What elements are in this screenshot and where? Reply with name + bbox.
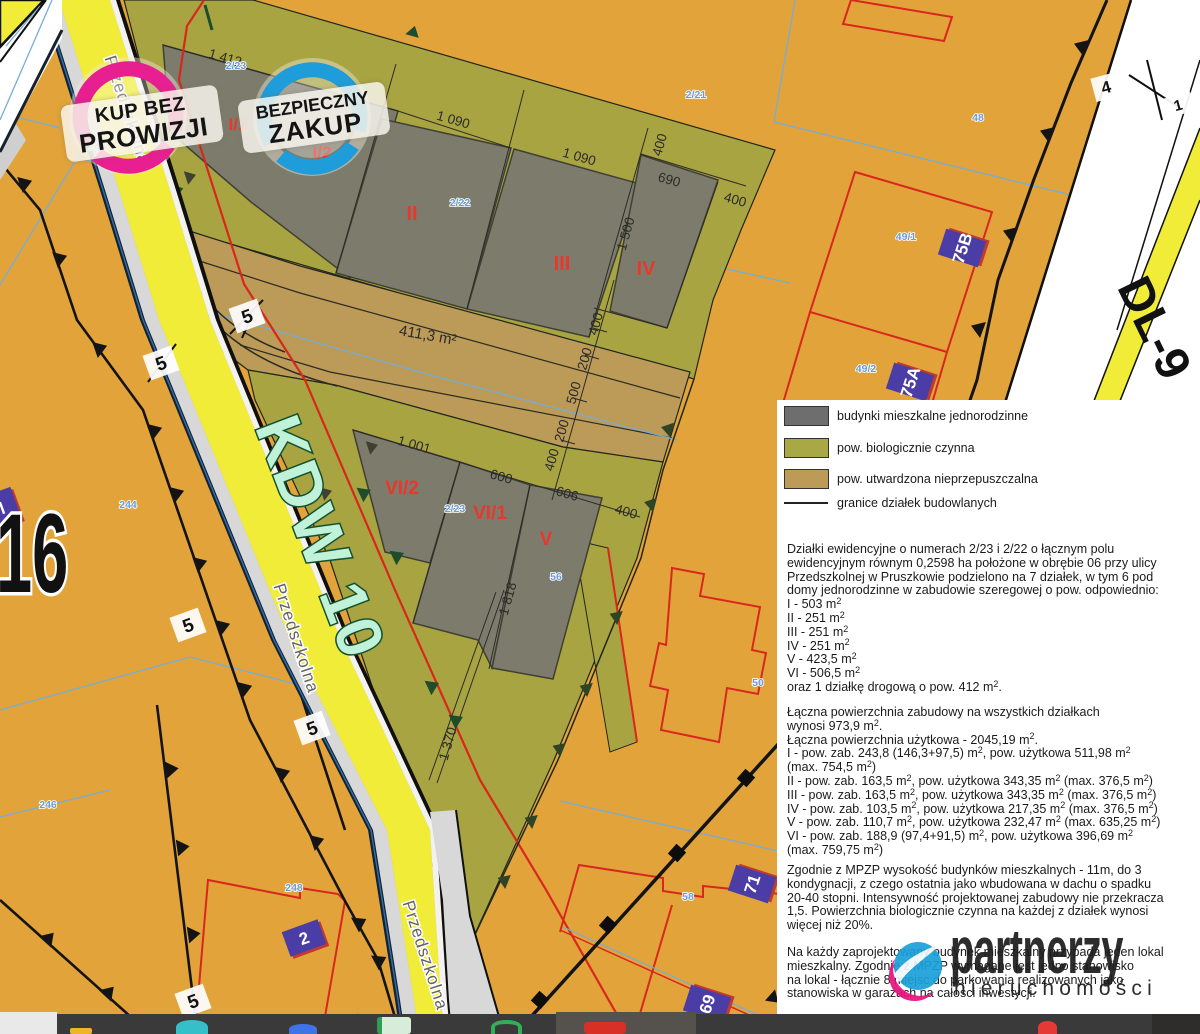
svg-text:50: 50 <box>752 677 764 689</box>
svg-text:IV: IV <box>637 258 657 280</box>
svg-text:48: 48 <box>972 112 984 124</box>
svg-text:VI/1: VI/1 <box>473 503 507 524</box>
svg-text:III: III <box>554 253 571 275</box>
svg-text:56: 56 <box>550 571 562 583</box>
svg-text:2/23: 2/23 <box>445 503 466 515</box>
svg-text:246: 246 <box>39 799 57 811</box>
svg-text:49/1: 49/1 <box>896 231 917 243</box>
svg-text:V: V <box>540 529 553 550</box>
svg-text:58: 58 <box>682 891 694 903</box>
svg-text:nieruchomości: nieruchomości <box>954 977 1157 1000</box>
svg-text:16: 16 <box>0 492 68 617</box>
svg-text:248: 248 <box>285 882 303 894</box>
svg-text:244: 244 <box>119 499 137 511</box>
svg-text:2/21: 2/21 <box>686 89 707 101</box>
svg-text:II: II <box>406 203 417 225</box>
svg-text:49/2: 49/2 <box>856 363 877 375</box>
svg-text:VI/2: VI/2 <box>385 478 419 499</box>
svg-text:2/22: 2/22 <box>450 197 471 209</box>
